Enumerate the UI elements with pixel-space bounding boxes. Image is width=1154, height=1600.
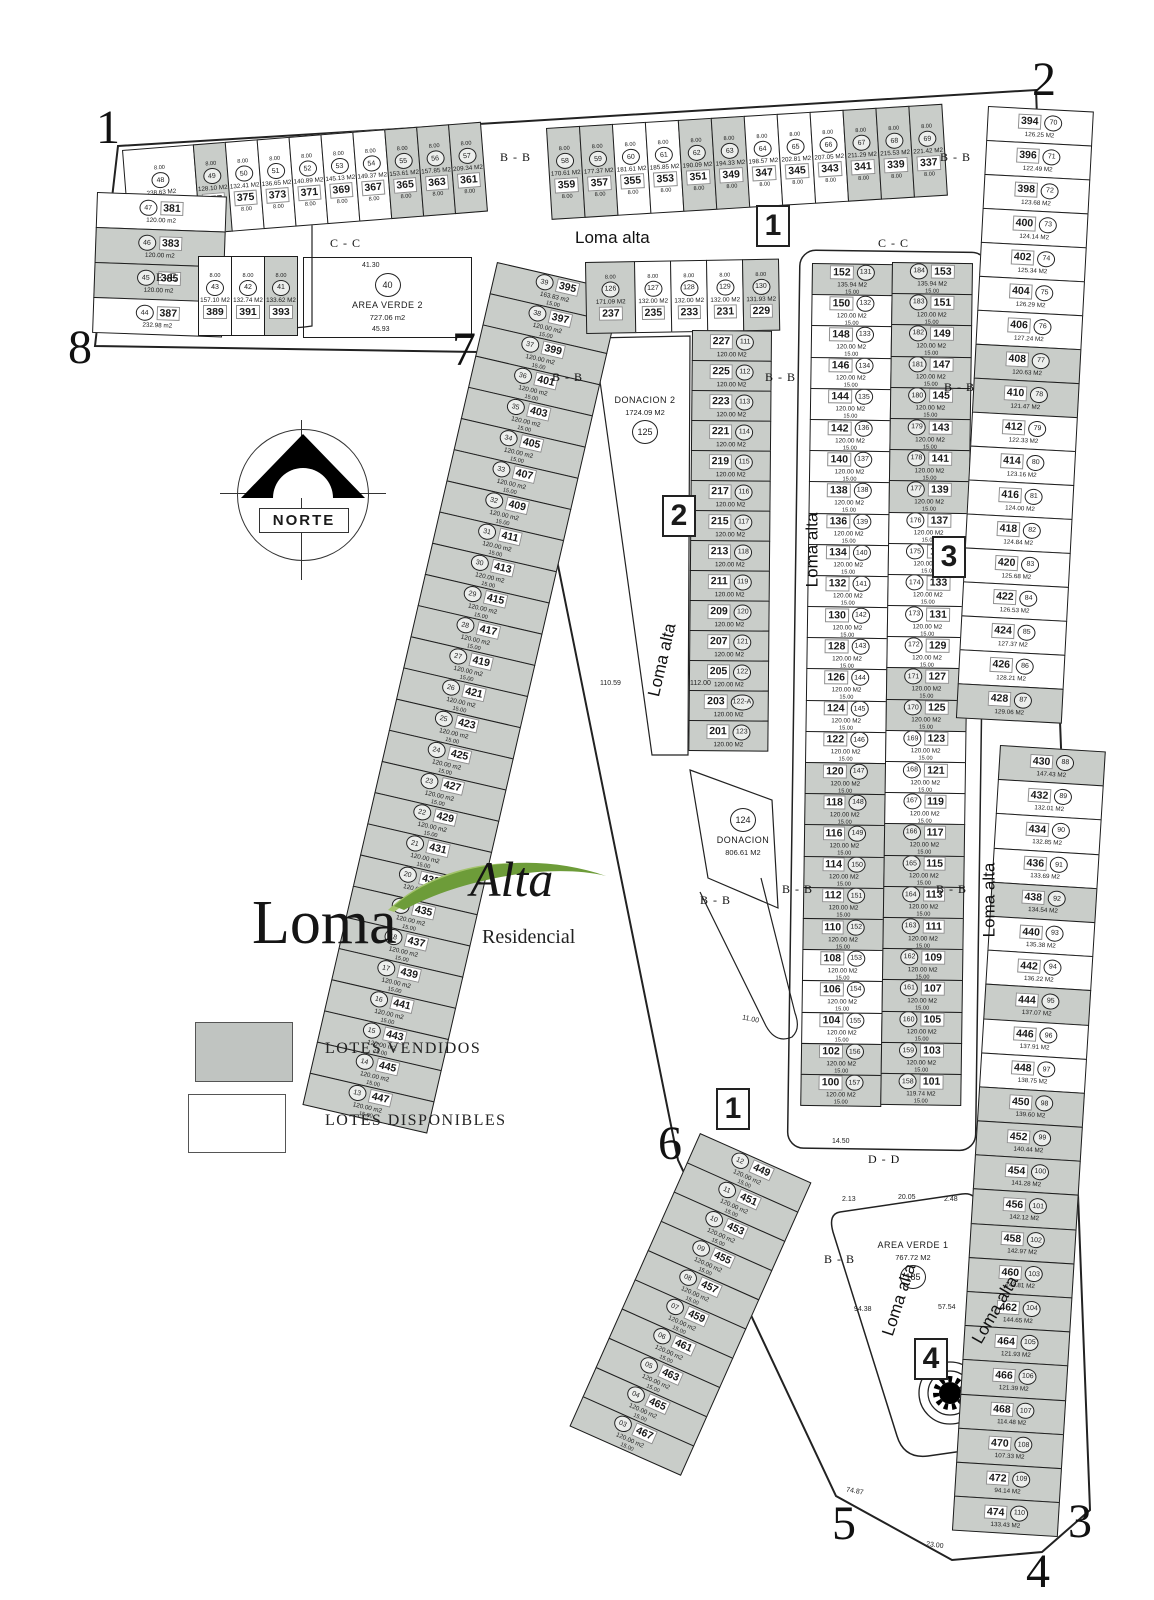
lot-ref-circle: 122 bbox=[733, 664, 751, 680]
lot-number: 450 bbox=[1009, 1095, 1033, 1110]
lot-area: 135.94 M2 bbox=[837, 281, 867, 288]
area-name: AREA VERDE 1 bbox=[877, 1240, 948, 1250]
lot-area: 147.43 M2 bbox=[1036, 770, 1066, 779]
lot-number: 148 bbox=[829, 327, 853, 341]
lot-138[interactable]: 138138120.00 M215.00 bbox=[809, 481, 890, 514]
lot-ref-circle: 146 bbox=[850, 732, 868, 748]
donacion-2[interactable]: DONACION 2 1724.09 M2 125 bbox=[597, 395, 693, 444]
legend-available-label: LOTES DISPONIBLES bbox=[325, 1112, 507, 1130]
lot-area: 120.00 M2 bbox=[828, 967, 858, 974]
lot-ref-circle: 118 bbox=[734, 544, 752, 560]
lot-ref-circle: 27 bbox=[447, 647, 468, 667]
lot-number: 337 bbox=[917, 155, 941, 170]
lot-ref-circle: 184 bbox=[910, 263, 928, 279]
area-name: AREA VERDE 2 bbox=[352, 300, 423, 310]
lot-ref-circle: 76 bbox=[1033, 318, 1052, 335]
lot-number: 456 bbox=[1002, 1197, 1026, 1212]
route-marker-1: 1 bbox=[756, 205, 790, 247]
lot-area: 171.09 M2 bbox=[596, 298, 626, 306]
lot-dimension: 8.00 bbox=[921, 124, 932, 131]
lot-ref-circle: 72 bbox=[1041, 182, 1060, 199]
lot-109[interactable]: 162109120.00 M215.00 bbox=[882, 948, 963, 981]
lot-389[interactable]: 8.0043157.10 M2389 bbox=[198, 256, 232, 336]
lot-area: 120.00 M2 bbox=[714, 681, 744, 688]
lot-391[interactable]: 8.0042132.74 M2391 bbox=[231, 256, 265, 336]
section-label-bb-3: B - B bbox=[500, 150, 531, 165]
lot-number: 124 bbox=[824, 701, 848, 715]
lot-number: 102 bbox=[819, 1044, 843, 1058]
lot-number: 408 bbox=[1005, 352, 1029, 367]
lot-area: 120.00 M2 bbox=[835, 437, 865, 444]
lot-ref-circle: 35 bbox=[505, 397, 526, 417]
logo-word-sub: Residencial bbox=[482, 926, 575, 949]
lot-107[interactable]: 161107120.00 M215.00 bbox=[882, 979, 963, 1012]
lot-area: 120.00 M2 bbox=[912, 685, 942, 692]
lot-area: 125.68 M2 bbox=[1001, 572, 1031, 581]
lot-area: 120.00 M2 bbox=[827, 998, 857, 1005]
lot-ref-circle: 48 bbox=[151, 172, 170, 189]
lot-area: 120.00 M2 bbox=[910, 779, 940, 786]
lot-ref-circle: 107 bbox=[1016, 1402, 1035, 1419]
lot-area: 120.00 M2 bbox=[832, 686, 862, 693]
lot-112[interactable]: 112151120.00 M215.00 bbox=[803, 887, 884, 920]
lot-area: 120.00 M2 bbox=[915, 467, 945, 474]
lot-ref-circle: 13 bbox=[347, 1083, 368, 1103]
lot-474[interactable]: 474110133.43 M2 bbox=[952, 1496, 1060, 1538]
lot-133[interactable]: 174133120.00 M215.00 bbox=[887, 574, 968, 607]
lot-ref-circle: 163 bbox=[901, 918, 919, 934]
lot-number: 225 bbox=[709, 365, 733, 379]
lot-area: 120.00 M2 bbox=[911, 717, 941, 724]
lot-area: 126.29 M2 bbox=[1016, 300, 1046, 309]
lot-126[interactable]: 126144120.00 M215.00 bbox=[806, 668, 887, 701]
lot-ref-circle: 116 bbox=[735, 484, 753, 500]
lot-number: 139 bbox=[928, 482, 952, 496]
lot-117[interactable]: 166117120.00 M215.00 bbox=[884, 823, 965, 856]
lot-area: 133.62 M2 bbox=[266, 297, 296, 304]
lot-129[interactable]: 172129120.00 M215.00 bbox=[886, 636, 967, 669]
lot-area: 121.93 M2 bbox=[1001, 1350, 1031, 1359]
lot-number: 149 bbox=[930, 326, 954, 340]
lot-area: 120.00 M2 bbox=[833, 593, 863, 600]
lot-149[interactable]: 182149120.00 M215.00 bbox=[891, 324, 972, 357]
lot-231[interactable]: 8.00129132.00 M2231 bbox=[706, 259, 744, 332]
lot-number: 436 bbox=[1023, 856, 1047, 871]
route-marker-2: 2 bbox=[662, 495, 696, 537]
lot-ref-circle: 16 bbox=[368, 989, 389, 1009]
lot-108[interactable]: 108153120.00 M215.00 bbox=[802, 949, 883, 982]
lot-ref-circle: 103 bbox=[1025, 1266, 1044, 1283]
lot-ref-circle: 34 bbox=[498, 428, 519, 448]
lot-223[interactable]: 223113120.00 M2 bbox=[691, 390, 771, 422]
lot-number: 430 bbox=[1029, 753, 1053, 768]
lot-381[interactable]: 47381120.00 m2 bbox=[96, 192, 227, 233]
lot-ref-circle: 106 bbox=[1018, 1368, 1037, 1385]
lot-number: 227 bbox=[710, 335, 734, 349]
lot-number: 434 bbox=[1025, 822, 1049, 837]
lot-209[interactable]: 209120120.00 M2 bbox=[689, 600, 769, 632]
lot-number: 205 bbox=[707, 665, 731, 679]
section-label-bb-4: B - B bbox=[940, 150, 971, 165]
lot-123[interactable]: 169123120.00 M215.00 bbox=[885, 730, 966, 763]
lot-number: 215 bbox=[708, 515, 732, 529]
lot-ref-circle: 85 bbox=[1017, 624, 1036, 641]
lot-ref-circle: 127 bbox=[644, 281, 662, 297]
lot-150[interactable]: 150132120.00 M215.00 bbox=[811, 294, 892, 327]
lot-dimension: 8.00 bbox=[891, 173, 902, 180]
lot-number: 101 bbox=[920, 1075, 944, 1089]
lot-393[interactable]: 8.0041133.62 M2393 bbox=[264, 256, 298, 336]
lot-number: 119 bbox=[924, 794, 947, 808]
lot-146[interactable]: 146134120.00 M215.00 bbox=[810, 357, 891, 390]
north-arrow-icon bbox=[241, 434, 365, 500]
legend-sold-swatch bbox=[195, 1022, 293, 1082]
lot-number: 131 bbox=[926, 607, 950, 621]
lot-area: 132.00 M2 bbox=[710, 296, 740, 304]
lot-area: 120.00 M2 bbox=[832, 655, 862, 662]
lot-130[interactable]: 130142120.00 M215.00 bbox=[807, 606, 888, 639]
lot-142[interactable]: 142136120.00 M215.00 bbox=[809, 419, 890, 452]
lot-102[interactable]: 102156120.00 M215.00 bbox=[801, 1043, 882, 1076]
lot-number: 201 bbox=[706, 725, 730, 739]
lot-153[interactable]: 184153135.94 M215.00 bbox=[892, 262, 973, 295]
lot-number: 470 bbox=[988, 1436, 1012, 1451]
lot-ref-circle: 38 bbox=[527, 304, 548, 324]
lot-area: 124.84 M2 bbox=[1003, 538, 1033, 547]
lot-219[interactable]: 219115120.00 M2 bbox=[691, 450, 771, 482]
lot-dimension: 8.00 bbox=[333, 151, 344, 158]
lot-235[interactable]: 8.00127132.00 M2235 bbox=[634, 260, 672, 333]
lot-201[interactable]: 201123120.00 M2 bbox=[688, 720, 768, 752]
lot-ref-circle: 171 bbox=[904, 668, 922, 684]
lot-ref-circle: 15 bbox=[361, 1021, 382, 1041]
lot-361[interactable]: 8.0057209.34 M23618.00 bbox=[448, 122, 488, 214]
lot-number: 217 bbox=[708, 485, 732, 499]
lot-dimension: 8.00 bbox=[237, 159, 248, 166]
lot-151[interactable]: 183151120.00 M215.00 bbox=[891, 293, 972, 326]
lot-ref-circle: 120 bbox=[734, 604, 752, 620]
lot-120[interactable]: 120147120.00 M215.00 bbox=[805, 762, 886, 795]
lot-207[interactable]: 207121120.00 M2 bbox=[689, 630, 769, 662]
area-size: 806.61 M2 bbox=[725, 848, 760, 857]
lot-ref-circle: 135 bbox=[855, 389, 873, 405]
dimension-label-9: 20.05 bbox=[898, 1194, 916, 1201]
dimension-label-11: 94.38 bbox=[854, 1306, 872, 1313]
lot-ref-circle: 89 bbox=[1054, 788, 1073, 805]
lot-140[interactable]: 140137120.00 M215.00 bbox=[809, 450, 890, 483]
lot-number: 454 bbox=[1004, 1163, 1028, 1178]
lot-number: 133 bbox=[927, 576, 951, 590]
lot-block-mid-left: 152131135.94 M215.00150132120.00 M215.00… bbox=[800, 263, 893, 1107]
lot-number: 203 bbox=[704, 695, 728, 709]
lot-number: 116 bbox=[822, 826, 845, 840]
lot-area: 120.00 M2 bbox=[916, 342, 946, 349]
lot-211[interactable]: 211119120.00 M2 bbox=[690, 570, 770, 602]
lot-number: 103 bbox=[920, 1044, 944, 1058]
lot-dimension: 8.00 bbox=[625, 142, 636, 149]
lot-number: 466 bbox=[992, 1368, 1016, 1383]
lot-ref-circle: 105 bbox=[1020, 1334, 1039, 1351]
lot-217[interactable]: 217116120.00 M2 bbox=[690, 480, 770, 512]
lot-area: 120.00 M2 bbox=[906, 1060, 936, 1067]
lot-131[interactable]: 173131120.00 M215.00 bbox=[887, 605, 968, 638]
lot-number: 104 bbox=[820, 1013, 844, 1027]
lot-number: 121 bbox=[924, 763, 948, 777]
lot-area: 120.00 M2 bbox=[717, 381, 747, 388]
lot-number: 452 bbox=[1006, 1129, 1030, 1144]
lot-143[interactable]: 179143120.00 M215.00 bbox=[889, 418, 970, 451]
lot-ref-circle: 62 bbox=[687, 145, 706, 162]
lot-124[interactable]: 124145120.00 M215.00 bbox=[805, 700, 886, 733]
lot-ref-circle: 36 bbox=[512, 366, 533, 386]
lot-ref-circle: 122-A bbox=[731, 694, 754, 710]
lot-area: 120.00 m2 bbox=[146, 217, 176, 225]
logo-word-accent: Alta bbox=[470, 850, 553, 908]
lot-dimension: 8.00 bbox=[719, 272, 730, 278]
lot-dimension: 8.00 bbox=[858, 175, 869, 182]
lot-number: 111 bbox=[922, 919, 945, 933]
lot-ref-circle: 92 bbox=[1047, 891, 1066, 908]
lot-number: 369 bbox=[329, 182, 354, 198]
lot-ref-circle: 121 bbox=[733, 634, 751, 650]
lot-area: 94.14 M2 bbox=[994, 1487, 1021, 1496]
lot-number: 381 bbox=[160, 201, 184, 216]
lot-area: 142.97 M2 bbox=[1007, 1248, 1037, 1257]
lot-ref-circle: 170 bbox=[904, 699, 922, 715]
lot-number: 233 bbox=[678, 305, 702, 319]
dimension-label-13: 14.50 bbox=[832, 1138, 850, 1145]
lot-104[interactable]: 104155120.00 M215.00 bbox=[801, 1011, 882, 1044]
lot-number: 442 bbox=[1017, 958, 1041, 973]
lot-dimension: 15.00 bbox=[914, 1099, 928, 1105]
lot-ref-circle: 67 bbox=[852, 135, 871, 152]
lot-area: 120.00 M2 bbox=[831, 718, 861, 725]
lot-area: 120.00 m2 bbox=[145, 252, 175, 260]
lot-127[interactable]: 171127120.00 M215.00 bbox=[886, 667, 967, 700]
lot-dimension: 8.00 bbox=[429, 144, 440, 151]
lot-ref-circle: 108 bbox=[1014, 1437, 1033, 1454]
lot-ref-circle: 70 bbox=[1044, 114, 1063, 131]
lot-ref-circle: 69 bbox=[918, 131, 937, 148]
lot-number: 422 bbox=[993, 589, 1017, 604]
lot-number: 472 bbox=[986, 1470, 1010, 1485]
lot-103[interactable]: 159103120.00 M215.00 bbox=[881, 1042, 962, 1075]
corner-marker-6: 6 bbox=[658, 1116, 682, 1171]
lot-125[interactable]: 170125120.00 M215.00 bbox=[885, 699, 966, 732]
lot-428[interactable]: 42887129.06 M2 bbox=[956, 683, 1064, 723]
lot-ref-circle: 71 bbox=[1042, 148, 1061, 165]
lot-number: 345 bbox=[785, 164, 809, 179]
lot-area: 120.00 M2 bbox=[826, 1061, 856, 1068]
lot-number: 398 bbox=[1014, 182, 1038, 197]
lot-number: 396 bbox=[1016, 148, 1040, 163]
lot-110[interactable]: 110152120.00 M215.00 bbox=[802, 918, 883, 951]
lot-ref-circle: 176 bbox=[907, 512, 925, 528]
lot-ref-circle: 111 bbox=[736, 334, 754, 350]
lot-area: 132.01 M2 bbox=[1034, 804, 1064, 813]
lot-number: 125 bbox=[925, 701, 949, 715]
area-size: 1724.09 M2 bbox=[625, 408, 665, 417]
lot-122[interactable]: 122146120.00 M215.00 bbox=[805, 731, 886, 764]
lot-area: 142.12 M2 bbox=[1009, 1213, 1039, 1222]
lot-148[interactable]: 148133120.00 M215.00 bbox=[811, 325, 892, 358]
lot-152[interactable]: 152131135.94 M215.00 bbox=[812, 263, 893, 296]
corner-marker-3: 3 bbox=[1068, 1494, 1092, 1549]
lot-100[interactable]: 100157120.00 M215.00 bbox=[800, 1074, 881, 1107]
lot-area: 120.00 M2 bbox=[917, 311, 947, 318]
lot-number: 458 bbox=[1000, 1231, 1024, 1246]
lot-ref-circle: 28 bbox=[455, 615, 476, 635]
lot-area: 107.33 M2 bbox=[994, 1452, 1024, 1461]
lot-area: 120.00 M2 bbox=[916, 374, 946, 381]
lot-ref-circle: 99 bbox=[1033, 1129, 1052, 1146]
dimension-label-1: 41.30 bbox=[362, 262, 380, 269]
lot-block-row2: 8.0043157.10 M23898.0042132.74 M23918.00… bbox=[198, 256, 298, 336]
lot-area: 120.00 M2 bbox=[907, 997, 937, 1004]
lot-number: 440 bbox=[1019, 924, 1043, 939]
lot-number: 144 bbox=[828, 390, 852, 404]
lot-ref-circle: 161 bbox=[900, 980, 918, 996]
lot-ref-circle: 114 bbox=[735, 424, 753, 440]
norte-label: NORTE bbox=[259, 508, 349, 533]
section-label-bb-8: B - B bbox=[700, 893, 731, 908]
lot-number: 100 bbox=[819, 1076, 843, 1090]
lot-dimension: 8.00 bbox=[683, 273, 694, 279]
lot-ref-circle: 152 bbox=[847, 919, 865, 935]
lot-area: 133.69 M2 bbox=[1030, 872, 1060, 881]
lot-227[interactable]: 227111120.00 M2 bbox=[692, 330, 772, 362]
lot-area: 120.00 M2 bbox=[910, 810, 940, 817]
lot-ref-circle: 115 bbox=[735, 454, 753, 470]
lot-ref-circle: 30 bbox=[469, 553, 490, 573]
lot-area: 120.00 M2 bbox=[913, 592, 943, 599]
lot-141[interactable]: 178141120.00 M215.00 bbox=[889, 449, 970, 482]
lot-111[interactable]: 163111120.00 M215.00 bbox=[882, 917, 963, 950]
lot-area: 120.00 M2 bbox=[715, 531, 745, 538]
lot-area: 120.00 M2 bbox=[829, 905, 859, 912]
lot-ref-circle: 83 bbox=[1021, 556, 1040, 573]
lot-139[interactable]: 177139120.00 M215.00 bbox=[889, 480, 970, 513]
lot-ref-circle: 149 bbox=[848, 826, 866, 842]
lot-area: 120.00 M2 bbox=[908, 935, 938, 942]
lot-237[interactable]: 8.00126171.09 M2237 bbox=[585, 261, 636, 334]
lot-area: 124.14 M2 bbox=[1019, 232, 1049, 241]
lot-number: 347 bbox=[752, 166, 776, 181]
lot-116[interactable]: 116149120.00 M215.00 bbox=[804, 824, 885, 857]
lot-118[interactable]: 118148120.00 M215.00 bbox=[804, 793, 885, 826]
lot-119[interactable]: 167119120.00 M215.00 bbox=[884, 792, 965, 825]
lot-ref-circle: 174 bbox=[906, 575, 924, 591]
lot-number: 109 bbox=[921, 950, 945, 964]
section-label-bb-11: B - B bbox=[824, 1252, 855, 1267]
legend-sold-label: LOTES VENDIDOS bbox=[325, 1040, 481, 1058]
donacion-1[interactable]: 124 DONACION 806.61 M2 bbox=[700, 808, 786, 857]
lot-ref-circle: 119 bbox=[734, 574, 752, 590]
lot-215[interactable]: 215117120.00 M2 bbox=[690, 510, 770, 542]
lot-area: 120.00 M2 bbox=[836, 406, 866, 413]
lot-225[interactable]: 225112120.00 M2 bbox=[691, 360, 771, 392]
lot-dimension: 8.00 bbox=[756, 134, 767, 141]
lot-dimension: 8.00 bbox=[205, 161, 216, 168]
lot-number: 448 bbox=[1011, 1061, 1035, 1076]
lot-ref-circle: 78 bbox=[1030, 386, 1049, 403]
lot-221[interactable]: 221114120.00 M2 bbox=[691, 420, 771, 452]
lot-number: 349 bbox=[719, 168, 743, 183]
lot-area: 120.00 M2 bbox=[916, 405, 946, 412]
lot-number: 152 bbox=[830, 265, 854, 279]
lot-ref-circle: 39 bbox=[534, 272, 555, 292]
lot-ref-circle: 154 bbox=[847, 981, 865, 997]
lot-229[interactable]: 8.00130131.93 M2229 bbox=[742, 259, 780, 332]
lot-105[interactable]: 160105120.00 M215.00 bbox=[881, 1010, 962, 1043]
lot-ref-circle: 29 bbox=[462, 584, 483, 604]
lot-number: 428 bbox=[987, 691, 1011, 706]
lot-number: 117 bbox=[923, 825, 946, 839]
lot-106[interactable]: 106154120.00 M215.00 bbox=[802, 980, 883, 1013]
lot-area: 120.00 M2 bbox=[908, 966, 938, 973]
lot-203[interactable]: 203122-A120.00 M2 bbox=[689, 690, 769, 722]
lot-ref-circle: 84 bbox=[1019, 590, 1038, 607]
lot-area: 120.00 M2 bbox=[907, 1028, 937, 1035]
lot-ref-circle: 148 bbox=[849, 794, 867, 810]
lot-ref-circle: 179 bbox=[908, 419, 926, 435]
lot-ref-circle: 65 bbox=[786, 139, 805, 156]
lot-area: 120.00 M2 bbox=[834, 530, 864, 537]
lot-number: 438 bbox=[1021, 890, 1045, 905]
lot-114[interactable]: 114150120.00 M215.00 bbox=[803, 856, 884, 889]
lot-area: 114.48 M2 bbox=[997, 1418, 1027, 1427]
lot-dimension: 8.00 bbox=[792, 179, 803, 186]
lot-area: 157.10 M2 bbox=[200, 297, 230, 304]
street-label-loma-alta-1: Loma alta bbox=[575, 228, 650, 248]
lot-number: 383 bbox=[159, 236, 183, 251]
lot-213[interactable]: 213118120.00 M2 bbox=[690, 540, 770, 572]
lot-dimension: 8.00 bbox=[397, 146, 408, 153]
area-name: DONACION bbox=[717, 835, 770, 845]
lot-area: 120.00 M2 bbox=[715, 561, 745, 568]
lot-number: 361 bbox=[457, 172, 482, 188]
lot-ref-circle: 126 bbox=[601, 281, 619, 297]
lot-number: 134 bbox=[826, 545, 850, 559]
lot-128[interactable]: 128143120.00 M215.00 bbox=[806, 637, 887, 670]
lot-number: 393 bbox=[269, 305, 293, 319]
area-size: 727.06 m2 bbox=[370, 313, 405, 322]
lot-ref-circle: 113 bbox=[736, 394, 754, 410]
lot-number: 141 bbox=[928, 451, 952, 465]
lot-233[interactable]: 8.00128132.00 M2233 bbox=[670, 260, 708, 333]
lot-101[interactable]: 158101119.74 M215.00 bbox=[880, 1073, 961, 1106]
lot-dimension: 8.00 bbox=[789, 132, 800, 139]
lot-ref-circle: 164 bbox=[902, 887, 920, 903]
section-label-bb-10: B - B bbox=[936, 882, 967, 897]
lot-144[interactable]: 144135120.00 M215.00 bbox=[810, 388, 891, 421]
lot-ref-circle: 97 bbox=[1037, 1061, 1056, 1078]
lot-ref-circle: 123 bbox=[733, 724, 751, 740]
lot-number: 387 bbox=[156, 306, 180, 321]
lot-ref-circle: 100 bbox=[1031, 1164, 1050, 1181]
lot-ref-circle: 82 bbox=[1023, 522, 1042, 539]
lot-ref-circle: 75 bbox=[1035, 284, 1054, 301]
lot-dimension: 8.00 bbox=[460, 141, 471, 148]
lot-ref-circle: 137 bbox=[854, 451, 872, 467]
lot-area: 133.43 M2 bbox=[990, 1521, 1020, 1530]
lot-area: 120.00 M2 bbox=[713, 741, 743, 748]
lot-ref-circle: 41 bbox=[272, 280, 290, 296]
lot-area: 122.33 M2 bbox=[1008, 436, 1038, 445]
lot-ref-circle: 130 bbox=[752, 279, 770, 295]
lot-121[interactable]: 168121120.00 M215.00 bbox=[885, 761, 966, 794]
lot-ref-circle: 138 bbox=[853, 483, 871, 499]
